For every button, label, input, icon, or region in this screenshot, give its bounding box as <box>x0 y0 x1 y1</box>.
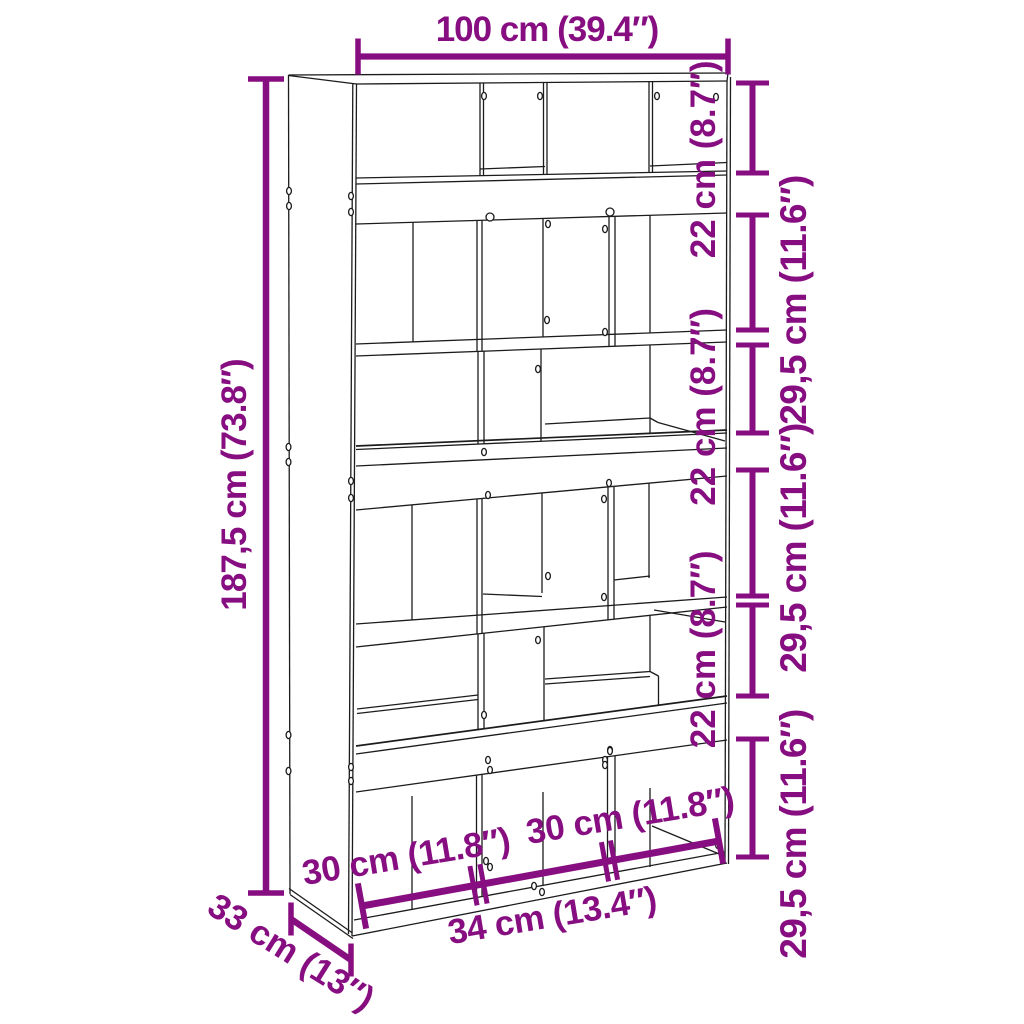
svg-text:29,5 cm (11.6″): 29,5 cm (11.6″) <box>773 709 814 958</box>
svg-text:22 cm (8.7″): 22 cm (8.7″) <box>684 308 723 506</box>
svg-text:100 cm (39.4″): 100 cm (39.4″) <box>436 10 659 49</box>
svg-text:29,5 cm (11.6″): 29,5 cm (11.6″) <box>773 423 814 672</box>
svg-text:22 cm (8.7″): 22 cm (8.7″) <box>684 61 723 259</box>
svg-text:22 cm (8.7″): 22 cm (8.7″) <box>684 551 723 749</box>
svg-text:29,5 cm (11.6″): 29,5 cm (11.6″) <box>773 175 814 424</box>
svg-text:187,5 cm (73.8″): 187,5 cm (73.8″) <box>215 359 254 610</box>
